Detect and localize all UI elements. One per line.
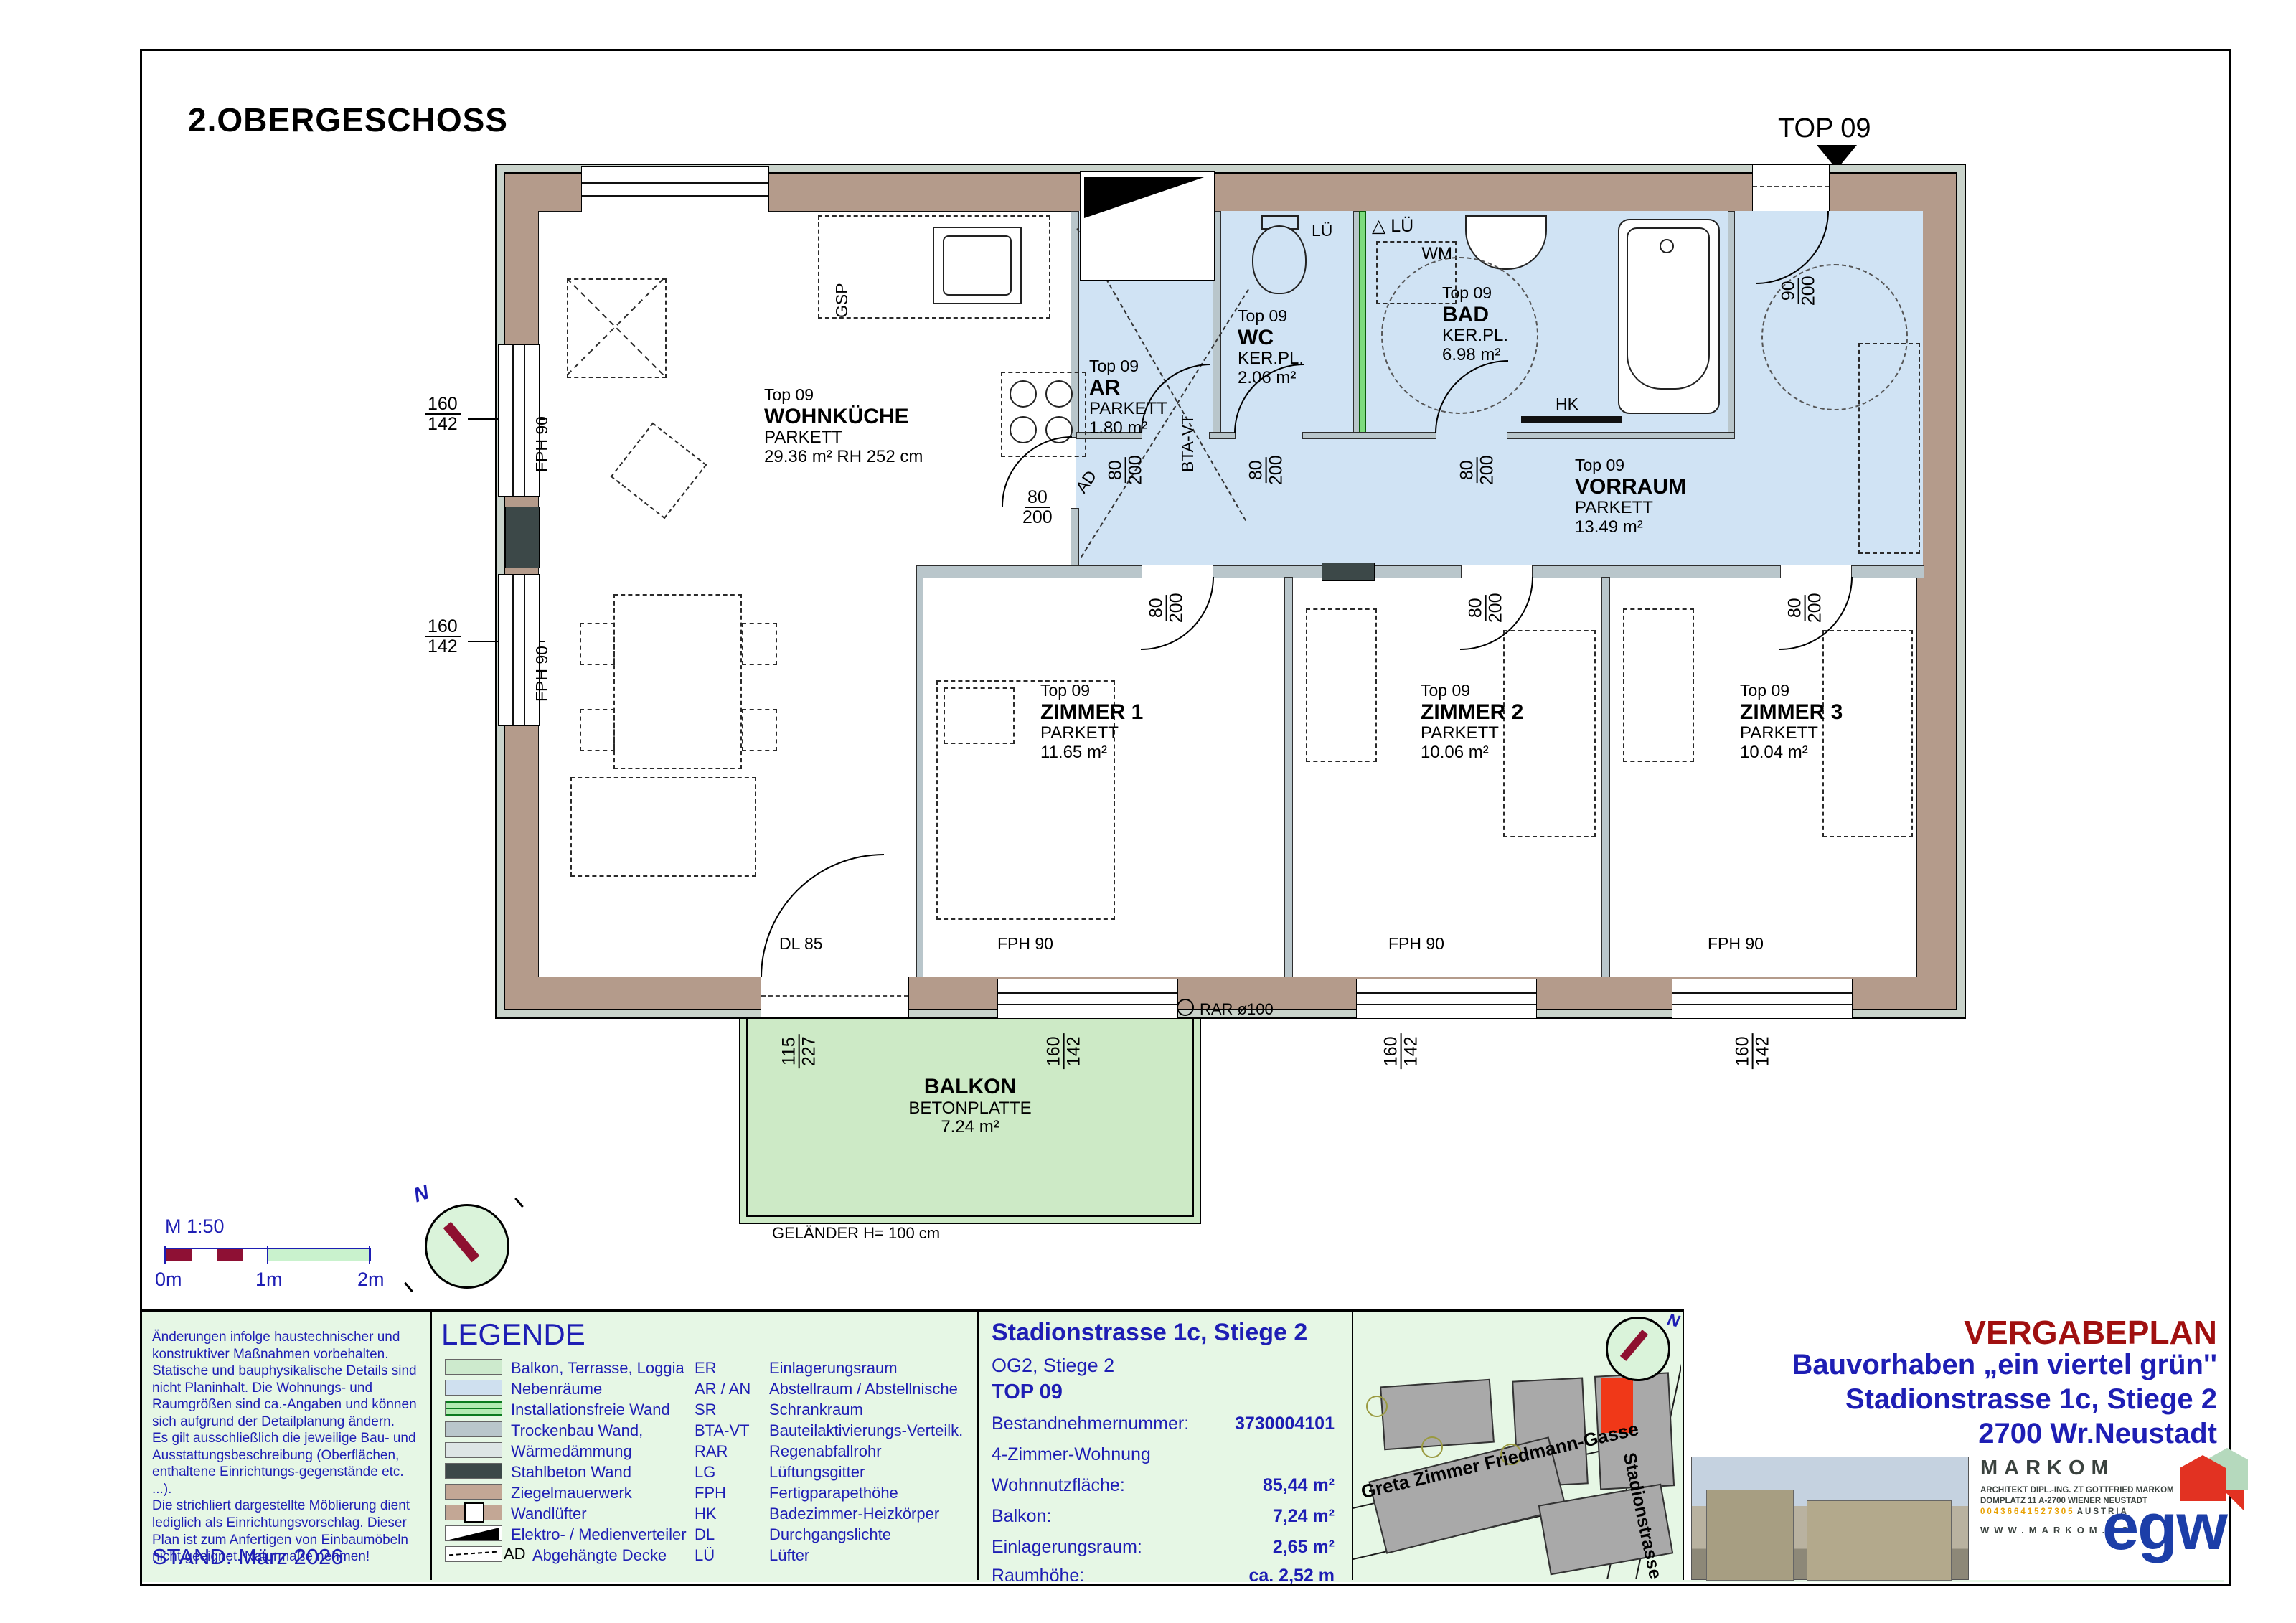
lue-triangle-icon: △ LÜ <box>1372 215 1413 237</box>
hk-label: HK <box>1556 395 1578 414</box>
panel-divider <box>430 1309 432 1580</box>
window <box>581 166 769 212</box>
dining-table <box>613 594 742 769</box>
legend-label: Ziegelmauerwerk <box>511 1484 632 1502</box>
room-label-zimmer1: Top 09 ZIMMER 1 PARKETT 11.65 m² <box>1040 682 1143 763</box>
dim-window: 160142 <box>425 617 461 657</box>
egw-logo: egw <box>2102 1494 2226 1560</box>
abbr-key: HK <box>695 1505 717 1523</box>
plan-sheet: { "sheet": { "floor_title": "2.OBERGESCH… <box>0 0 2296 1623</box>
chair <box>742 709 777 751</box>
dim-door: 80200 <box>1106 455 1146 485</box>
elektro-verteiler-icon <box>1084 177 1206 218</box>
dim-door: 80200 <box>1467 593 1506 623</box>
info-row: 4-Zimmer-Wohnung <box>992 1444 1343 1465</box>
site-compass-icon <box>1606 1317 1670 1381</box>
abbr-term: Durchgangslichte <box>769 1525 891 1544</box>
chair <box>742 623 777 665</box>
scale-seg <box>243 1249 268 1261</box>
panel-divider <box>977 1309 979 1580</box>
scale-tick <box>369 1246 370 1264</box>
abbr-term: Badezimmer-Heizkörper <box>769 1505 939 1523</box>
wall <box>1209 432 1236 439</box>
abbr-term: Abstellraum / Abstellnische <box>769 1380 958 1398</box>
room-label-wohnkueche: Top 09 WOHNKÜCHE PARKETT 29.36 m² RH 252… <box>764 386 923 467</box>
bathtub-icon <box>1618 219 1720 414</box>
fph-label: FPH 90 <box>1388 934 1444 954</box>
ad-symbol-tag: AD <box>504 1545 526 1563</box>
top09-label: TOP 09 <box>1778 113 1871 144</box>
wardrobe-zimmer2 <box>1306 608 1377 762</box>
rar-pipe-icon <box>1177 999 1194 1016</box>
elektro-symbol <box>445 1525 502 1541</box>
stand-label: STAND: März 2026 <box>152 1544 343 1570</box>
info-unit: TOP 09 <box>992 1380 1063 1404</box>
dim-door: 80200 <box>1247 455 1286 485</box>
bathtub-drain-icon <box>1660 239 1674 253</box>
abbr-key: LÜ <box>695 1546 715 1565</box>
photo-building-block <box>1807 1500 1952 1581</box>
vorraum-closet <box>1858 343 1920 554</box>
sofa <box>570 777 756 877</box>
wall <box>916 565 1142 578</box>
legend-swatch-balkon <box>445 1359 502 1375</box>
floor-plan: LÜ △ LÜ WM HK GSP <box>495 164 1966 1019</box>
burner <box>1010 380 1037 408</box>
wall <box>1507 432 1735 439</box>
chair <box>580 623 615 665</box>
room-label-wc: Top 09 WC KER.PL. 2.06 m² <box>1238 307 1304 388</box>
dim-window: 160142 <box>1382 1033 1421 1069</box>
installationsfreie-wand <box>1359 211 1366 433</box>
window <box>1672 979 1853 1019</box>
room-label-zimmer3: Top 09 ZIMMER 3 PARKETT 10.04 m² <box>1740 682 1843 763</box>
architect-phone: 00436641527305 <box>1980 1507 2075 1516</box>
wardrobe-zimmer3 <box>1623 608 1694 762</box>
dim-entry-door: 90200 <box>1779 276 1819 306</box>
wardrobe <box>567 278 667 378</box>
wandluefter-symbol <box>445 1505 502 1520</box>
abbr-term: Einlagerungsraum <box>769 1359 898 1378</box>
abbr-key: SR <box>695 1401 717 1419</box>
site-compass-north: N <box>1665 1311 1681 1331</box>
shaft <box>1080 171 1215 281</box>
scale-seg <box>268 1249 370 1261</box>
gelaender-label: GELÄNDER H= 100 cm <box>772 1224 940 1243</box>
abbr-key: BTA-VT <box>695 1421 750 1440</box>
scale-2m: 2m <box>357 1269 385 1291</box>
legend-swatch-nebenraeume <box>445 1380 502 1396</box>
abbr-term: Lüfter <box>769 1546 809 1565</box>
wall <box>1302 432 1436 439</box>
scale-seg <box>217 1249 243 1261</box>
site-plan: Greta Zimmer Friedmann-Gasse Stadionstra… <box>1353 1311 1681 1579</box>
scale-seg <box>192 1249 217 1261</box>
bad-heizkoerper <box>1521 416 1622 423</box>
legend-label: Balkon, Terrasse, Loggia <box>511 1359 684 1378</box>
room-label-ar: Top 09 AR PARKETT 1.80 m² <box>1089 357 1167 438</box>
abbr-term: Lüftungsgitter <box>769 1463 865 1482</box>
rar-label: RAR ø100 <box>1200 1000 1274 1019</box>
room-label-zimmer2: Top 09 ZIMMER 2 PARKETT 10.06 m² <box>1421 682 1523 763</box>
legend-swatch-stahlbeton <box>445 1463 502 1479</box>
page-title: 2.OBERGESCHOSS <box>188 100 508 139</box>
legend-swatch-ziegel <box>445 1484 502 1500</box>
architect-name: MARKOM <box>1980 1457 2174 1480</box>
legend-label: Installationsfreie Wand <box>511 1401 670 1419</box>
legend-label: Wärmedämmung <box>511 1442 632 1461</box>
info-row: Einlagerungsraum:2,65 m² <box>992 1537 1343 1558</box>
ad-dash <box>449 1551 497 1556</box>
wall <box>1728 211 1735 433</box>
dim-window: 160142 <box>1733 1033 1773 1069</box>
tree-icon <box>1366 1396 1388 1417</box>
plan-type-title: VERGABEPLAN <box>1693 1313 2217 1352</box>
wall <box>1601 577 1610 977</box>
room-label-bad: Top 09 BAD KER.PL. 6.98 m² <box>1442 284 1508 365</box>
info-row: Wohnnutzfläche:85,44 m² <box>992 1475 1343 1496</box>
stahlbeton-pier <box>1322 563 1375 581</box>
lue-label: LÜ <box>1312 221 1332 240</box>
wall <box>1284 577 1293 977</box>
dim-door: 80200 <box>1022 488 1053 527</box>
fph-label: FPH 90 <box>532 646 552 702</box>
egw-house-tail-icon <box>2223 1490 2244 1511</box>
abbr-key: LG <box>695 1463 715 1482</box>
legend-swatch-trockenbau <box>445 1421 502 1437</box>
dim-door: 80200 <box>1786 593 1825 623</box>
window <box>997 979 1178 1019</box>
disclaimer-text: Änderungen infolge haustechnischer und k… <box>152 1329 426 1566</box>
legend-title: LEGENDE <box>441 1317 585 1352</box>
abbr-key: DL <box>695 1525 715 1544</box>
chair <box>580 709 615 751</box>
entrance-door-opening <box>1752 165 1830 211</box>
wall <box>1851 565 1924 578</box>
gsp-label: GSP <box>832 283 852 318</box>
building-photo <box>1691 1457 1969 1580</box>
project-line1: Bauvorhaben „ein viertel grün'' <box>1693 1349 2217 1381</box>
legend-label: Wandlüfter <box>511 1505 587 1523</box>
balcony-door-opening <box>761 977 909 1017</box>
legend-swatch-installationsfrei <box>445 1401 502 1416</box>
room-label-vorraum: Top 09 VORRAUM PARKETT 13.49 m² <box>1575 456 1686 537</box>
project-line2: Stadionstrasse 1c, Stiege 2 <box>1693 1383 2217 1416</box>
abbr-term: Regenabfallrohr <box>769 1442 882 1461</box>
project-line3: 2700 Wr.Neustadt <box>1693 1418 2217 1450</box>
wardrobe-cross-icon <box>567 278 664 375</box>
window <box>1356 979 1537 1019</box>
burner <box>1045 380 1073 408</box>
fph-label: FPH 90 <box>532 416 552 472</box>
info-row: Bestandnehmernummer:3730004101 <box>992 1413 1343 1434</box>
stahlbeton-pier <box>505 507 540 568</box>
info-address: Stadionstrasse 1c, Stiege 2 <box>992 1319 1307 1347</box>
dim-window: 160142 <box>425 395 461 434</box>
legend-label: Nebenräume <box>511 1380 602 1398</box>
scale-tick <box>267 1246 268 1264</box>
abbr-key: FPH <box>695 1484 726 1502</box>
burner <box>1010 416 1037 443</box>
kitchen-sink-icon <box>933 227 1022 304</box>
wall <box>916 565 923 977</box>
tree-icon <box>1421 1436 1443 1458</box>
scale-seg <box>166 1249 192 1261</box>
room-label-balkon: BALKON BETONPLATTE 7.24 m² <box>740 1075 1200 1137</box>
abbr-term: Fertigparapethöhe <box>769 1484 898 1502</box>
abbr-term: Schrankraum <box>769 1401 863 1419</box>
scale-0m: 0m <box>155 1269 182 1291</box>
abbr-key: ER <box>695 1359 717 1378</box>
abbr-term: Bauteilaktivierungs-Verteilk. <box>769 1421 963 1440</box>
legend-label: Stahlbeton Wand <box>511 1463 631 1482</box>
elektro-wedge <box>446 1528 499 1540</box>
photo-building-block <box>1706 1490 1794 1581</box>
dl-label: DL 85 <box>779 934 823 954</box>
legend-label: Trockenbau Wand, <box>511 1421 643 1440</box>
info-row: Balkon:7,24 m² <box>992 1506 1343 1527</box>
scale-tick <box>164 1246 166 1264</box>
pillow <box>944 687 1015 744</box>
dim-window: 160142 <box>1045 1033 1084 1069</box>
abbr-key: RAR <box>695 1442 728 1461</box>
btavt-label: BTA-VT <box>1178 415 1198 472</box>
toilet-bowl-icon <box>1252 225 1307 294</box>
dim-door: 80200 <box>1458 455 1497 485</box>
fph-label: FPH 90 <box>997 934 1053 954</box>
legend-swatch-waermedaemmung <box>445 1442 502 1458</box>
abbr-key: AR / AN <box>695 1380 751 1398</box>
info-row: Raumhöhe:ca. 2,52 m <box>992 1566 1343 1586</box>
scale-label: M 1:50 <box>165 1215 225 1238</box>
wall <box>1532 565 1781 578</box>
scale-1m: 1m <box>255 1269 283 1291</box>
info-floor: OG2, Stiege 2 <box>992 1355 1114 1377</box>
dim-door: 80200 <box>1147 593 1187 623</box>
ad-symbol <box>445 1546 502 1562</box>
dim-balkon-door: 115227 <box>780 1034 819 1068</box>
legend-label: Elektro- / Medienverteiler <box>511 1525 687 1544</box>
fph-label: FPH 90 <box>1708 934 1764 954</box>
legend-label: Abgehängte Decke <box>532 1546 667 1565</box>
wandluefter-box <box>464 1502 484 1523</box>
wall <box>1071 508 1079 567</box>
sink-basin <box>943 235 1012 296</box>
